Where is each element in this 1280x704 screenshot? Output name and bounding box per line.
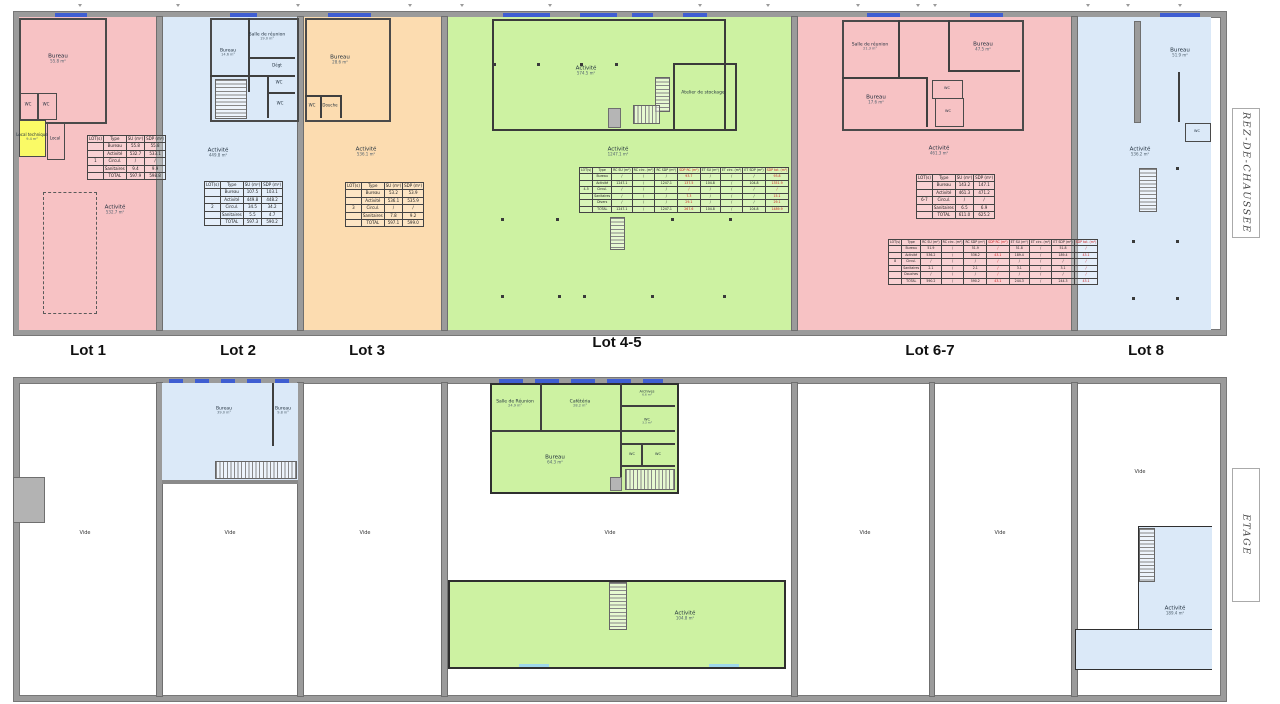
partition-wall bbox=[210, 75, 295, 77]
window bbox=[580, 13, 617, 17]
room-label-wc: WC bbox=[277, 102, 284, 107]
window bbox=[571, 379, 595, 383]
surface-table-lot8: LOT(s)TypeRC SU (m²)RC circ. (m²)RC SDP … bbox=[888, 239, 1098, 285]
column-dot bbox=[501, 295, 504, 298]
partition-wall bbox=[641, 443, 643, 465]
partition-wall bbox=[620, 383, 622, 490]
service-block bbox=[14, 478, 44, 522]
window bbox=[632, 13, 653, 17]
window bbox=[328, 13, 371, 17]
staircase bbox=[633, 105, 660, 124]
room-label-atelier: Atelier de stockage bbox=[681, 90, 724, 95]
vide-label: Vide bbox=[80, 530, 91, 536]
lot1-label: Lot 1 bbox=[70, 342, 106, 359]
window bbox=[683, 13, 707, 17]
column-dot bbox=[729, 218, 732, 221]
survey-tick bbox=[1178, 4, 1182, 7]
partition-wall bbox=[622, 443, 675, 445]
column-dot bbox=[583, 295, 586, 298]
partition-wall bbox=[842, 77, 926, 79]
surface-table-lot3: LOT(s)TypeSU (m²)SDP (m²)Bureau53.253.9A… bbox=[345, 182, 424, 227]
room-label-activite: Activité189.4 m² bbox=[1165, 606, 1186, 617]
window bbox=[169, 379, 183, 383]
window bbox=[275, 379, 289, 383]
surface-table-lot2: LOT(s)TypeSU (m²)SDP (m²)Bureau107.5103.… bbox=[204, 181, 283, 226]
lot2-label: Lot 2 bbox=[220, 342, 256, 359]
room-label-activite: Activité461.3 m² bbox=[929, 146, 950, 157]
column-dot bbox=[1176, 240, 1179, 243]
partition-wall bbox=[272, 383, 274, 446]
room-label-bureau: Bureau39.0 m² bbox=[216, 406, 232, 415]
reserved-zone-outline bbox=[43, 192, 97, 314]
window bbox=[709, 664, 739, 667]
survey-tick bbox=[933, 4, 937, 7]
room-label-salle-reunion: Salle de réunion21.3 m² bbox=[852, 42, 888, 51]
party-wall bbox=[442, 383, 447, 696]
survey-tick bbox=[1126, 4, 1130, 7]
column-dot bbox=[671, 218, 674, 221]
upper-floor-title-box: ETAGE bbox=[1232, 468, 1260, 602]
window bbox=[607, 379, 631, 383]
survey-tick bbox=[698, 4, 702, 7]
column-dot bbox=[556, 218, 559, 221]
survey-tick bbox=[548, 4, 552, 7]
room-label-degt: Dégt bbox=[272, 64, 282, 69]
survey-tick bbox=[296, 4, 300, 7]
column-dot bbox=[651, 295, 654, 298]
room-label-activite: Activité536.2 m² bbox=[1130, 147, 1151, 158]
workshop-room bbox=[673, 63, 737, 131]
vide-label: Vide bbox=[860, 530, 871, 536]
window bbox=[519, 664, 549, 667]
room-label-bureau: Bureau55.8 m² bbox=[48, 54, 68, 65]
partition-wall bbox=[490, 430, 675, 432]
surface-table-lot67: LOT(s)TypeSU (m²)SDP (m²)Bureau143.2147.… bbox=[916, 174, 995, 219]
room-label-wc: WC3.3 m² bbox=[642, 417, 652, 424]
duct-block bbox=[611, 478, 621, 490]
room-label-wc: WC bbox=[276, 81, 283, 86]
column-dot bbox=[1132, 297, 1135, 300]
room-label-wc: WC bbox=[944, 86, 950, 90]
window bbox=[230, 13, 257, 17]
staircase bbox=[625, 469, 675, 490]
room-label-wc: WC bbox=[629, 452, 635, 456]
column-dot bbox=[537, 63, 540, 66]
survey-tick bbox=[766, 4, 770, 7]
partition-wall bbox=[622, 465, 675, 467]
room-label-bureau: Bureau17.6 m² bbox=[866, 95, 886, 106]
partition-wall bbox=[248, 18, 250, 92]
room-label-wc: WC bbox=[1194, 129, 1200, 133]
surface-table-lot1: LOT(s)TypeSU (m²)SDP (m²)Bureau55.855.8A… bbox=[87, 135, 166, 180]
partition-wall bbox=[267, 75, 269, 118]
staircase bbox=[215, 79, 247, 119]
ground-floor-plan: Bureau55.8 m² WC WC Local technique9.4 m… bbox=[14, 12, 1226, 335]
surface-table-lot45: LOT(s)TypeRC SU (m²)RC circ. (m²)RC SDP … bbox=[579, 167, 789, 213]
room-label-cafeteria: Cafétéria28.2 m² bbox=[570, 399, 591, 408]
column-dot bbox=[1132, 240, 1135, 243]
vide-label: Vide bbox=[1135, 469, 1146, 475]
room-label-activite: Activité574.5 m² bbox=[576, 66, 597, 77]
survey-tick bbox=[1086, 4, 1090, 7]
partition-wall bbox=[540, 383, 542, 430]
partition-wall bbox=[267, 92, 295, 94]
room-label-activite: Activité532.7 m² bbox=[105, 205, 126, 216]
room-label-archives: Archives6.6 m² bbox=[640, 389, 655, 396]
staircase bbox=[610, 217, 625, 250]
column-dot bbox=[501, 218, 504, 221]
column-dot bbox=[615, 63, 618, 66]
vide-label: Vide bbox=[360, 530, 371, 536]
partition-wall bbox=[926, 77, 928, 127]
party-wall bbox=[442, 17, 447, 330]
vide-label: Vide bbox=[605, 530, 616, 536]
staircase bbox=[215, 461, 297, 479]
room-label-wc: WC bbox=[945, 109, 951, 113]
storage-room bbox=[47, 123, 65, 160]
partition-wall bbox=[620, 405, 675, 407]
room-label-wc: WC bbox=[309, 104, 316, 109]
vide-label: Vide bbox=[995, 530, 1006, 536]
partition-wall bbox=[1178, 72, 1180, 122]
column-dot bbox=[558, 295, 561, 298]
column-dot bbox=[493, 63, 496, 66]
room-label-bureau: Bureau28.6 m² bbox=[330, 55, 350, 66]
partition-wall bbox=[305, 95, 342, 97]
window bbox=[499, 379, 523, 383]
room-label-activite: Activité449.8 m² bbox=[208, 148, 229, 159]
room-label-douche: Douche bbox=[322, 104, 337, 109]
party-wall bbox=[298, 383, 303, 696]
party-wall bbox=[930, 383, 934, 696]
survey-tick bbox=[176, 4, 180, 7]
window bbox=[970, 13, 1003, 17]
staircase bbox=[1139, 168, 1157, 212]
column-dot bbox=[1176, 167, 1179, 170]
window bbox=[221, 379, 235, 383]
wall-stub bbox=[1135, 22, 1140, 122]
party-wall bbox=[792, 17, 797, 330]
survey-tick bbox=[408, 4, 412, 7]
lot8-label: Lot 8 bbox=[1128, 342, 1164, 359]
lot45-label: Lot 4-5 bbox=[592, 334, 641, 351]
room-label-activite: Activité104.8 m² bbox=[675, 611, 696, 622]
survey-tick bbox=[78, 4, 82, 7]
lot3-label: Lot 3 bbox=[349, 342, 385, 359]
window bbox=[867, 13, 900, 17]
upper-floor-plan: Vide Bureau39.0 m² Bureau9.8 m² Vide Vid… bbox=[14, 378, 1226, 701]
window bbox=[535, 379, 559, 383]
window bbox=[503, 13, 550, 17]
room-label-wc: WC bbox=[25, 103, 32, 108]
staircase bbox=[1139, 528, 1155, 582]
room-label-activite: Activité536.1 m² bbox=[356, 147, 377, 158]
room-label-local: Local bbox=[50, 137, 60, 142]
room-label-bureau: Bureau51.9 m² bbox=[1170, 48, 1190, 59]
column-dot bbox=[1176, 297, 1179, 300]
vide-label: Vide bbox=[225, 530, 236, 536]
room-label-wc: WC bbox=[655, 452, 661, 456]
office-room bbox=[305, 18, 391, 122]
room-label-salle-reunion: Salle de Réunion24.9 m² bbox=[496, 399, 534, 408]
window bbox=[195, 379, 209, 383]
window bbox=[247, 379, 261, 383]
duct-block bbox=[609, 109, 620, 127]
party-wall bbox=[792, 383, 797, 696]
floor-plan-sheet: Bureau55.8 m² WC WC Local technique9.4 m… bbox=[0, 0, 1280, 704]
window bbox=[643, 379, 663, 383]
ground-floor-title: REZ-DE-CHAUSSEE bbox=[1241, 112, 1252, 233]
room-label-bureau: Bureau9.8 m² bbox=[275, 406, 291, 415]
partition-wall bbox=[948, 70, 1020, 72]
staircase bbox=[609, 582, 627, 630]
survey-tick bbox=[916, 4, 920, 7]
ground-floor-title-box: REZ-DE-CHAUSSEE bbox=[1232, 108, 1260, 238]
column-dot bbox=[723, 295, 726, 298]
partition-wall bbox=[898, 20, 900, 77]
room-label-bureau: Bureau14.6 m² bbox=[220, 48, 236, 57]
window bbox=[55, 13, 87, 17]
room-label-bureau: Bureau64.3 m² bbox=[545, 455, 565, 466]
room-label-wc: WC bbox=[43, 103, 50, 108]
partition-wall bbox=[340, 95, 342, 118]
office-block bbox=[842, 20, 1024, 131]
window bbox=[1160, 13, 1200, 17]
room-label-bureau: Bureau47.5 m² bbox=[973, 42, 993, 53]
lot67-label: Lot 6-7 bbox=[905, 342, 954, 359]
room-label-activite-main: Activité1247.1 m² bbox=[608, 147, 629, 158]
upper-floor-title: ETAGE bbox=[1241, 514, 1252, 556]
mezzanine-block bbox=[1075, 629, 1212, 670]
room-label-salle-reunion: Salle de réunion19.0 m² bbox=[249, 32, 285, 41]
partition-wall bbox=[948, 20, 950, 72]
room-label-local-technique: Local technique9.4 m² bbox=[16, 133, 48, 141]
survey-tick bbox=[856, 4, 860, 7]
partition-wall bbox=[248, 57, 295, 59]
survey-tick bbox=[460, 4, 464, 7]
